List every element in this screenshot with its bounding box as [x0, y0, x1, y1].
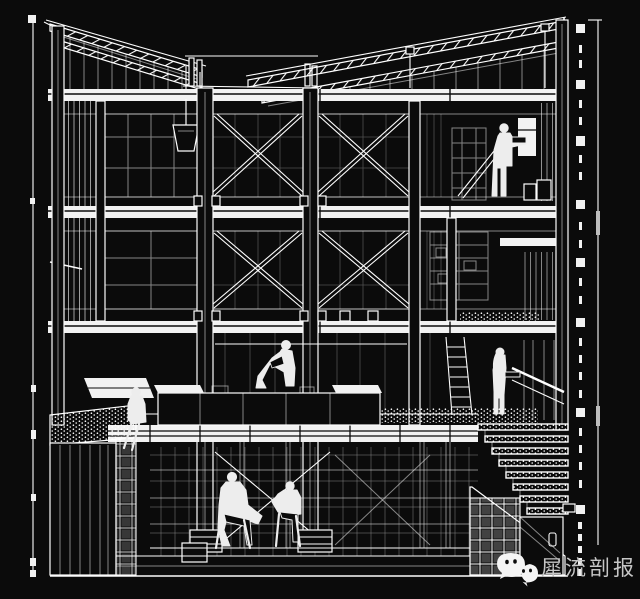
balcony-rail-beam: [500, 238, 556, 246]
floor-crate: [182, 543, 207, 562]
watermark-text: 犀流剖报: [541, 556, 637, 580]
screenshot-root: 犀流剖报: [0, 0, 640, 599]
platform-paving: [363, 408, 538, 423]
planter-box: [50, 388, 146, 575]
balcony-gravel-strip: [460, 312, 540, 321]
section-drawing: 犀流剖报: [0, 0, 640, 599]
